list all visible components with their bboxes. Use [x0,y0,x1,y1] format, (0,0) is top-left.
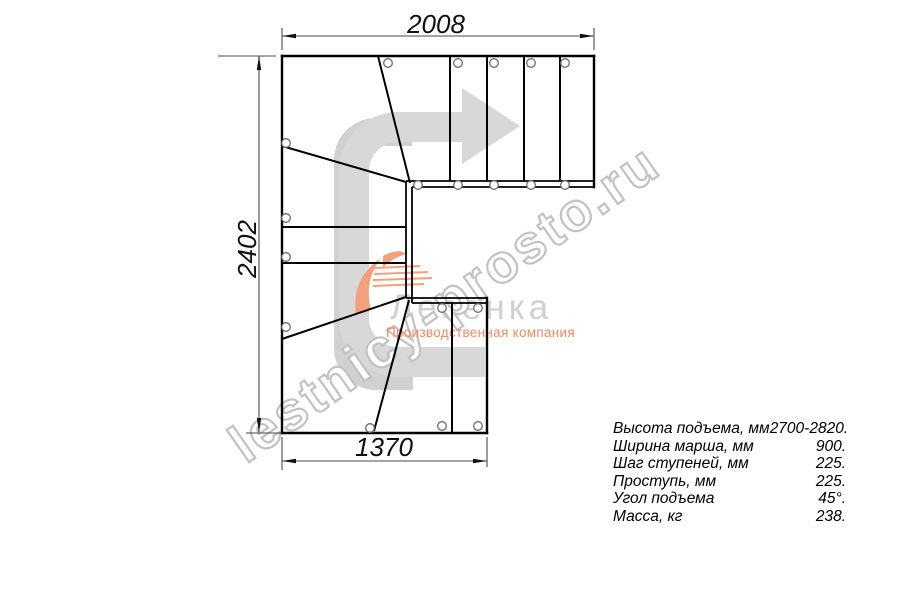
spec-label: Ширина марша, мм [613,438,754,456]
spec-value: 2700-2820. [770,420,848,438]
spec-label: Высота подъема, мм [613,420,770,438]
spec-value: 225. [816,455,846,473]
spec-value: 900. [816,438,846,456]
spec-label: Угол подъема [613,490,714,508]
spec-value: 238. [816,508,846,526]
spec-row: Шаг ступеней, мм 225. [613,455,846,473]
logo-subtitle: Производственная компания [386,325,575,340]
spec-table: Высота подъема, мм 2700-2820. Ширина мар… [613,420,846,526]
spec-value: 45°. [818,490,846,508]
spec-value: 225. [816,473,846,491]
dimension-bottom-value: 1370 [355,432,413,462]
spec-row: Ширина марша, мм 900. [613,438,846,456]
stair-plan-page: Лесенка lestnicy-prosto.ru Производствен… [0,0,900,600]
dimension-left-value: 2402 [232,220,262,279]
spec-row: Масса, кг 238. [613,508,846,526]
spec-row: Проступь, мм 225. [613,473,846,491]
spec-label: Шаг ступеней, мм [613,455,749,473]
spec-label: Проступь, мм [613,473,716,491]
dimension-top-value: 2008 [406,9,465,39]
spec-row: Высота подъема, мм 2700-2820. [613,420,846,438]
spec-row: Угол подъема 45°. [613,490,846,508]
spec-label: Масса, кг [613,508,682,526]
